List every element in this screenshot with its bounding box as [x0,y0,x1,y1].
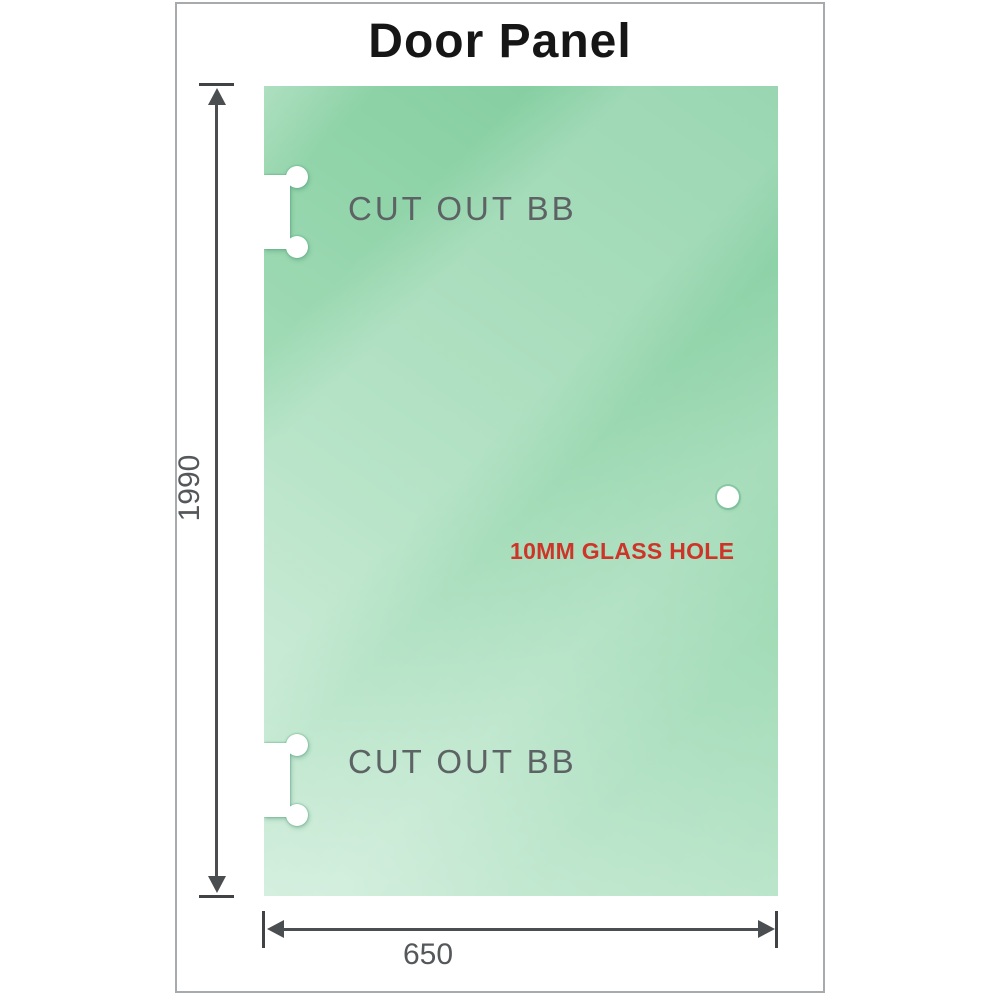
width-dimension-label: 650 [378,938,478,972]
cutout-drill-hole-top [286,166,308,188]
cutout-notch-rect [264,175,290,249]
cutout-bb-bottom-label: CUT OUT BB [348,743,577,781]
dimension-tick-bottom [199,895,234,898]
dimension-tick-right [775,911,778,948]
arrow-down-icon [208,876,226,893]
height-dimension-label: 1990 [170,448,210,528]
glass-hole [717,486,739,508]
cutout-bb-bottom [264,734,310,826]
cutout-drill-hole-bottom [286,236,308,258]
glass-panel: CUT OUT BB CUT OUT BB 10MM GLASS HOLE [264,86,778,896]
cutout-drill-hole-top [286,734,308,756]
cutout-bb-top [264,166,310,258]
cutout-bb-top-label: CUT OUT BB [348,190,577,228]
dimension-line-horizontal [280,928,760,931]
arrow-right-icon [758,920,775,938]
cutout-drill-hole-bottom [286,804,308,826]
dimension-tick-left [262,911,265,948]
glass-hole-label: 10MM GLASS HOLE [510,538,710,565]
dimension-line-vertical [215,100,218,880]
dimension-tick-top [199,83,234,86]
door-panel-drawing: Door Panel CUT OUT BB CUT OUT BB 10MM GL… [0,0,1000,1000]
cutout-notch-rect [264,743,290,817]
drawing-title: Door Panel [175,14,825,69]
